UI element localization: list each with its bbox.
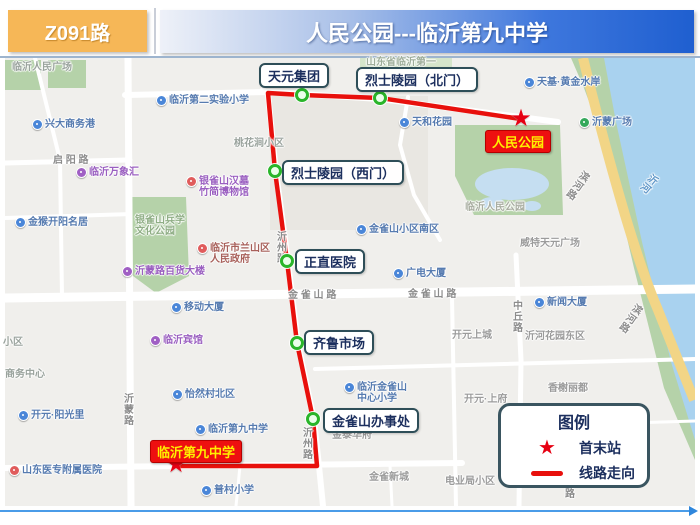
- bottom-rule-arrow: [689, 506, 698, 516]
- legend-title: 图例: [509, 409, 639, 433]
- route-number-badge: Z091路: [8, 10, 147, 52]
- terminal-star-icon: ★: [538, 438, 556, 458]
- route-line-icon: [531, 471, 563, 476]
- legend-row-terminal: ★ 首末站: [509, 438, 639, 458]
- bottom-rule: [0, 510, 690, 512]
- slide: { "header": { "route_number": "Z091路", "…: [0, 0, 700, 525]
- header-divider: [154, 8, 156, 54]
- legend-route-label: 线路走向: [579, 463, 635, 483]
- legend-box: 图例 ★ 首末站 线路走向: [498, 403, 650, 488]
- legend-terminal-label: 首末站: [579, 438, 621, 458]
- route-title-banner: 人民公园---临沂第九中学: [160, 10, 694, 53]
- legend-row-route: 线路走向: [509, 463, 639, 483]
